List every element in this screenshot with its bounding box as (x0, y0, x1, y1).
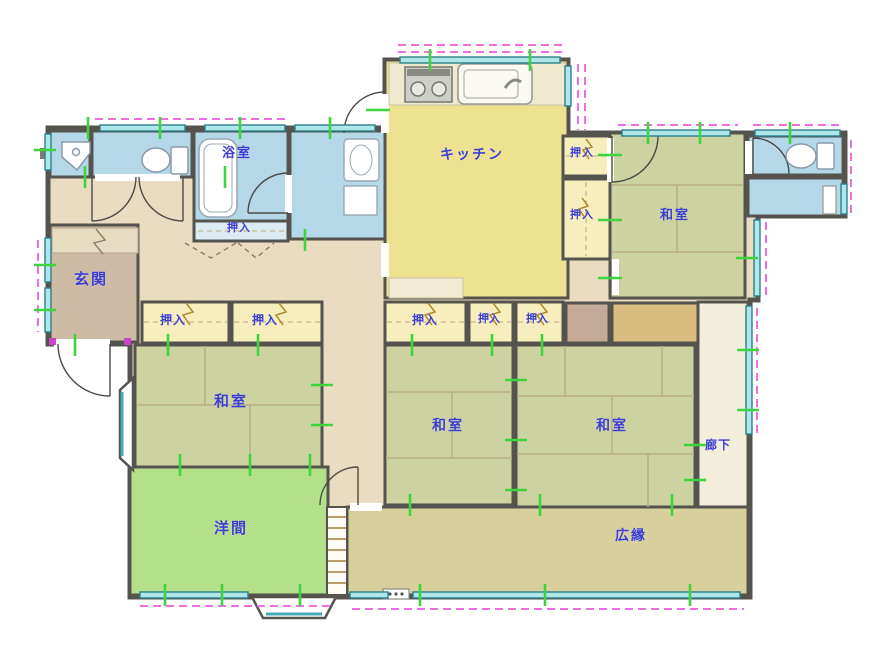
room-rouka (698, 302, 748, 508)
room-label-rouka: 廊下 (705, 439, 731, 451)
room-label-washitsu-southeast: 和室 (596, 418, 628, 432)
door-genkan-front (58, 344, 110, 396)
room-label-closet-center-a: 押入 (412, 314, 438, 326)
tokonoma-shelf (566, 303, 609, 343)
room-label-washitsu-center: 和室 (432, 418, 464, 432)
room-label-closet-center-c: 押入 (526, 314, 548, 325)
room-hiroen (347, 507, 748, 595)
rooms (50, 60, 843, 595)
room-label-genkan: 玄関 (74, 272, 108, 287)
genkan-step (52, 228, 138, 254)
room-label-hiroen: 広縁 (615, 528, 647, 542)
room-label-kitchen: キッチン (440, 147, 504, 161)
kitchen-sideboard (389, 278, 463, 298)
cabinet-right (823, 186, 836, 214)
toilet-icon (142, 147, 188, 174)
toilet-right-icon (786, 143, 834, 169)
room-label-closet-west-a: 押入 (160, 314, 186, 326)
room-label-yoma: 洋間 (214, 521, 248, 536)
stove-icon (405, 67, 452, 102)
floor-plan: 浴室 キッチン 押入 押入 和室 押入 玄関 押入 押入 押入 押入 押入 和室… (0, 0, 890, 668)
room-label-bathroom: 浴室 (222, 146, 252, 159)
floor-plan-canvas (0, 0, 890, 668)
room-label-closet-kitchen-upper: 押入 (570, 148, 594, 159)
washbasin2-icon (344, 139, 379, 215)
washer-cabinet-icon (344, 186, 377, 215)
room-label-closet-center-b: 押入 (478, 314, 500, 325)
room-label-washitsu-northeast: 和室 (660, 208, 690, 221)
room-label-closet-west-b: 押入 (252, 314, 278, 326)
room-label-closet-bath: 押入 (227, 223, 251, 234)
kitchen-sink-icon (458, 64, 532, 104)
tokonoma (612, 303, 698, 343)
room-label-washitsu-west: 和室 (214, 394, 248, 409)
room-label-closet-kitchen-lower: 押入 (570, 210, 594, 221)
